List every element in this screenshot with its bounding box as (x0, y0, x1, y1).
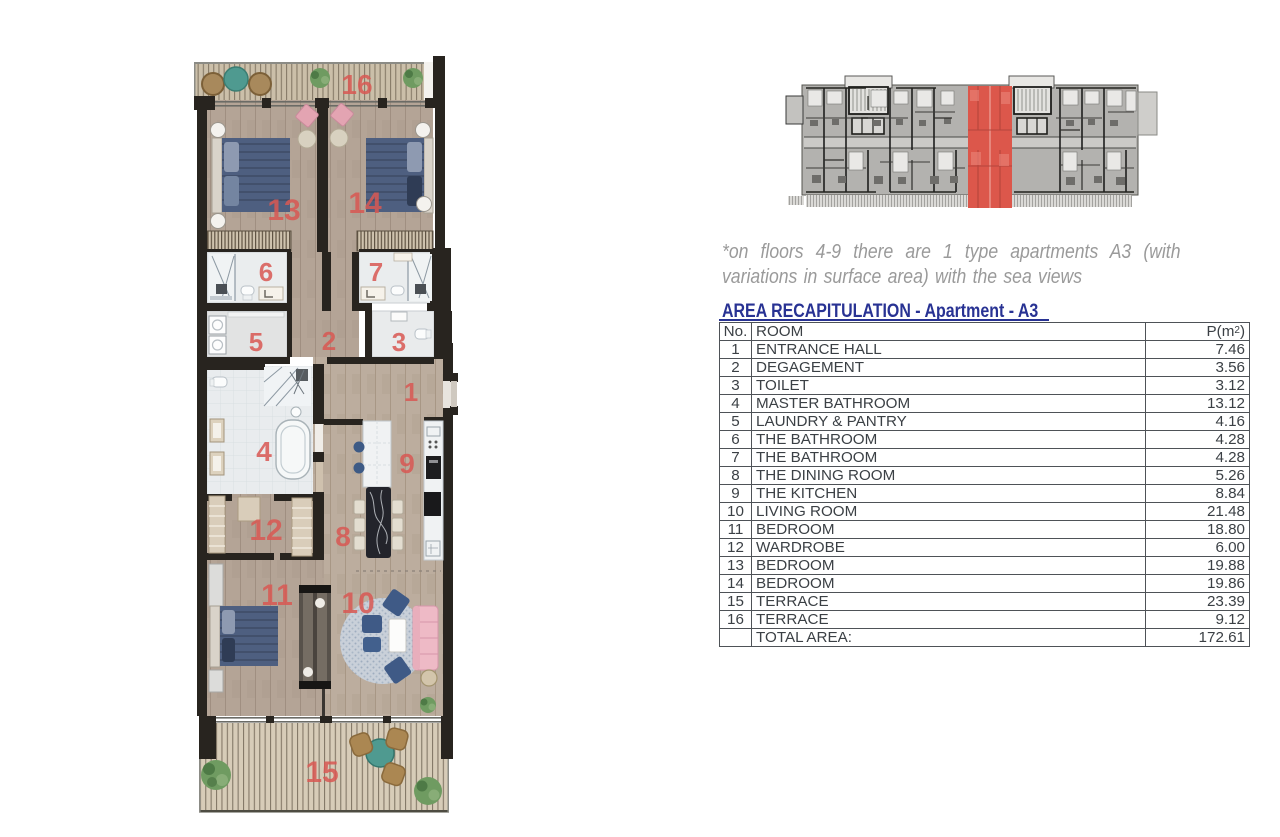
svg-text:11: 11 (261, 579, 293, 612)
svg-text:10: 10 (341, 587, 374, 620)
svg-text:1: 1 (404, 377, 418, 407)
svg-text:3: 3 (392, 327, 406, 357)
svg-text:12: 12 (249, 514, 282, 547)
svg-text:9: 9 (399, 448, 415, 479)
svg-text:4: 4 (256, 436, 272, 467)
svg-text:5: 5 (249, 327, 263, 357)
svg-text:6: 6 (259, 257, 273, 287)
svg-text:8: 8 (335, 521, 351, 552)
svg-text:2: 2 (322, 326, 336, 356)
svg-text:16: 16 (341, 69, 372, 100)
svg-text:15: 15 (305, 756, 338, 789)
svg-text:14: 14 (348, 187, 382, 220)
svg-text:13: 13 (267, 194, 300, 227)
svg-text:7: 7 (369, 257, 383, 287)
